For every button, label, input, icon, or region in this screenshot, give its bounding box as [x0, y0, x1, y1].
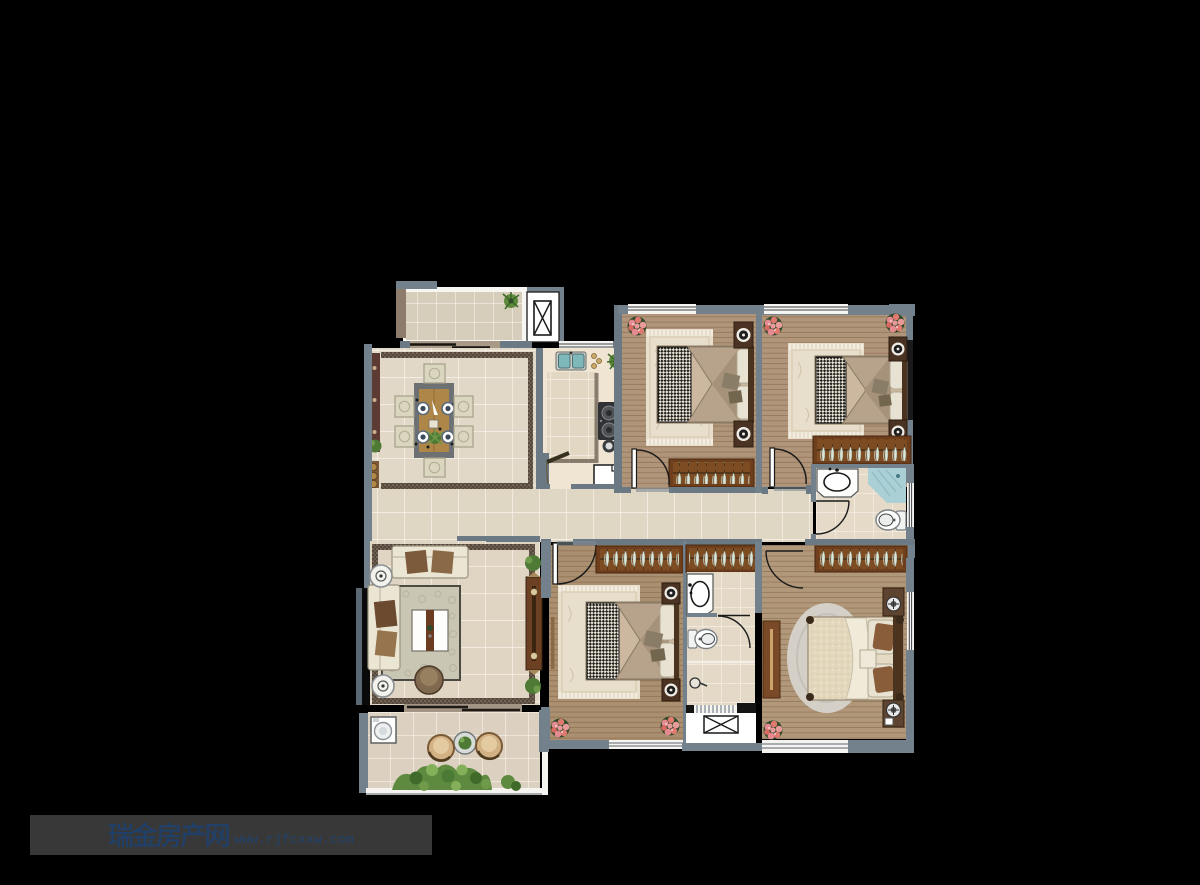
- svg-text:www.rjfcxxw.com: www.rjfcxxw.com: [234, 832, 354, 847]
